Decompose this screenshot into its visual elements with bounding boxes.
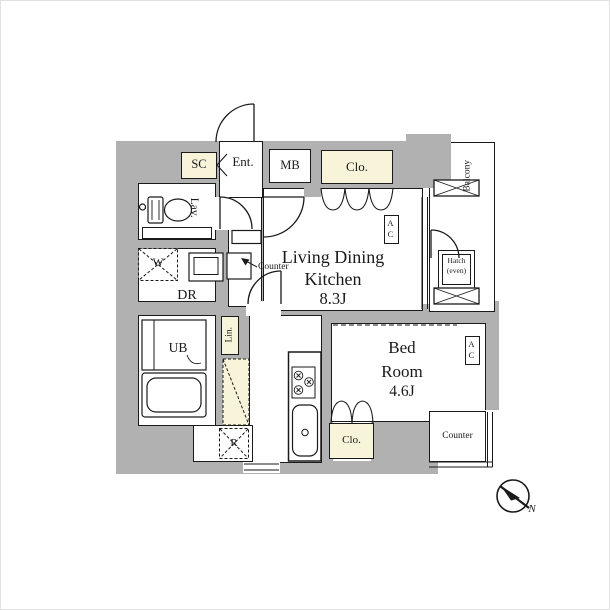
lavatory-door <box>220 197 252 229</box>
label-washer: W <box>146 258 170 270</box>
label-shoe-closet: SC <box>181 158 217 171</box>
label-ldk-line1: Living Dining <box>258 248 408 266</box>
label-refrigerator: R <box>222 438 246 449</box>
label-unit-bath: UB <box>158 341 198 355</box>
label-entrance: Ent. <box>221 155 265 168</box>
label-lavatory: Lav. <box>187 188 199 228</box>
floor-plan: SC Ent. MB Clo. Balcony Lav. W DR Counte… <box>0 0 610 610</box>
window-kitchen-bottom <box>244 464 279 470</box>
living-closet-doors <box>321 188 393 210</box>
kitchen-counter-box <box>227 253 251 279</box>
label-bedroom-size: 4.6J <box>362 384 442 400</box>
label-bedroom-closet: Clo. <box>329 435 374 446</box>
label-compass-north: N <box>524 504 540 515</box>
kitchen-unit <box>289 352 322 461</box>
label-balcony: Balcony <box>463 144 473 208</box>
window-ldk-balcony <box>422 197 428 309</box>
label-bedroom-counter: Counter <box>431 432 484 442</box>
label-ldk-line2: Kitchen <box>258 270 408 288</box>
label-hatch-line2: (even) <box>438 267 475 275</box>
label-bedroom-line2: Room <box>362 363 442 380</box>
label-ac-bedroom: AC <box>467 339 476 361</box>
balcony-unit-bottom <box>434 288 479 304</box>
label-bedroom-line1: Bed <box>362 339 442 356</box>
service-space-dashes <box>223 359 249 425</box>
balcony-door <box>431 230 459 258</box>
ldk-door <box>264 197 304 237</box>
hall-step <box>232 231 261 244</box>
label-linen: Lin. <box>225 320 235 350</box>
unit-bath-fixtures <box>142 320 206 417</box>
bedroom-closet-doors <box>331 401 373 423</box>
label-dressing-room: DR <box>167 289 207 303</box>
label-hatch-line1: Hatch <box>438 257 475 265</box>
label-ldk-size: 8.3J <box>258 291 408 308</box>
toilet-icon <box>140 197 192 223</box>
label-meter-box: MB <box>269 159 311 172</box>
label-living-closet: Clo. <box>321 160 393 173</box>
label-ac-living: AC <box>386 218 395 240</box>
